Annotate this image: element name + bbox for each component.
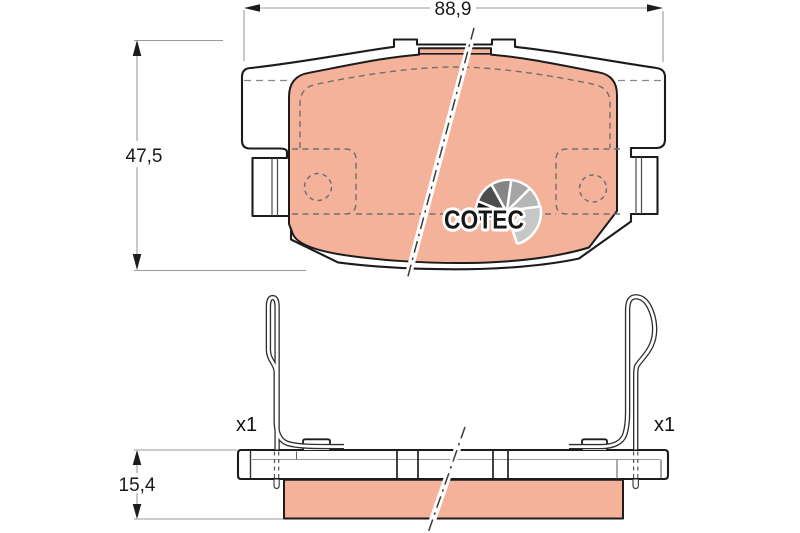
arrow-down-icon xyxy=(133,254,142,270)
logo-wordmark: COTEC xyxy=(444,205,524,235)
pin-tip xyxy=(633,480,638,489)
pad-side-view: x1 x1 xyxy=(236,297,675,533)
right-quantity-label: x1 xyxy=(654,414,675,436)
arrow-left-icon xyxy=(244,4,260,12)
arrow-up-icon xyxy=(133,450,142,465)
thickness-dimension-label: 15,4 xyxy=(119,475,156,496)
drawing-canvas: 88,9 47,5 15,4 xyxy=(0,0,800,533)
pad-top-view xyxy=(242,28,665,280)
arrow-right-icon xyxy=(647,4,663,12)
pin-tip xyxy=(274,480,279,489)
left-quantity-label: x1 xyxy=(236,414,257,436)
arrow-up-icon xyxy=(133,40,142,56)
arrow-down-icon xyxy=(133,504,142,519)
brake-pad-technical-drawing: 88,9 47,5 15,4 xyxy=(0,0,800,533)
width-dimension-label: 88,9 xyxy=(435,0,472,20)
height-dimension-label: 47,5 xyxy=(126,146,163,167)
friction-material-side xyxy=(284,480,623,519)
